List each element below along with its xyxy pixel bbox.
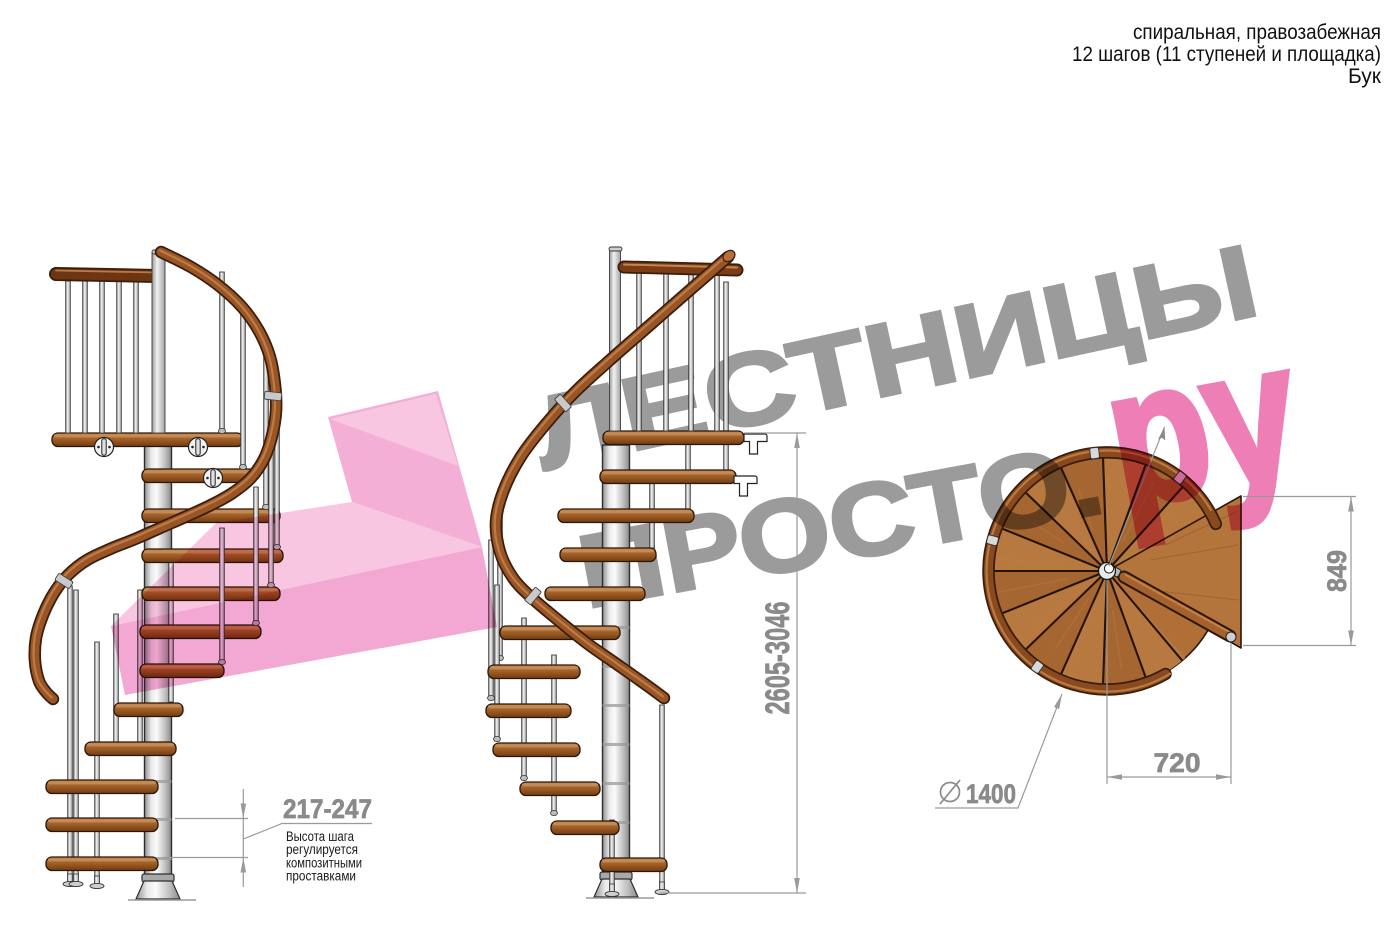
svg-text:спиральная, правозабежная: спиральная, правозабежная <box>1133 21 1381 44</box>
svg-text:Бук: Бук <box>1348 65 1382 88</box>
svg-text:проставками: проставками <box>286 869 356 884</box>
svg-text:217-247: 217-247 <box>283 794 372 824</box>
svg-text:ру: ру <box>1090 300 1315 550</box>
svg-text:1400: 1400 <box>966 779 1016 809</box>
svg-text:2605-3046: 2605-3046 <box>759 602 797 715</box>
svg-text:12 шагов (11 ступеней и площад: 12 шагов (11 ступеней и площадка) <box>1072 43 1381 66</box>
svg-text:720: 720 <box>1154 748 1201 778</box>
svg-text:849: 849 <box>1322 550 1352 592</box>
